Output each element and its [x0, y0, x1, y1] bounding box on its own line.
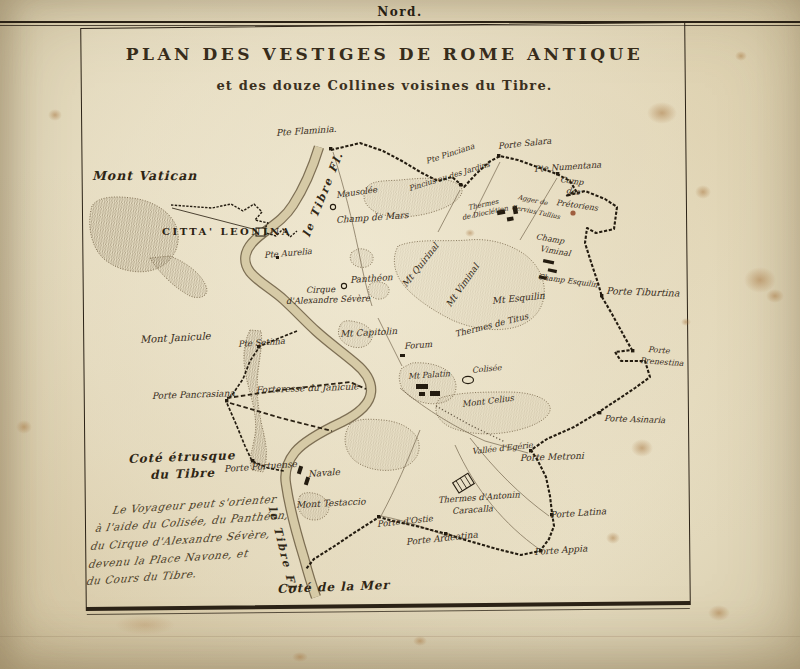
map-engraving	[0, 0, 800, 669]
map-title: PLAN DES VESTIGES DE ROME ANTIQUE	[83, 44, 686, 64]
map-subtitle: et des douze Collines voisines du Tibre.	[83, 78, 686, 93]
scanned-map-page: Nord.	[0, 0, 800, 669]
